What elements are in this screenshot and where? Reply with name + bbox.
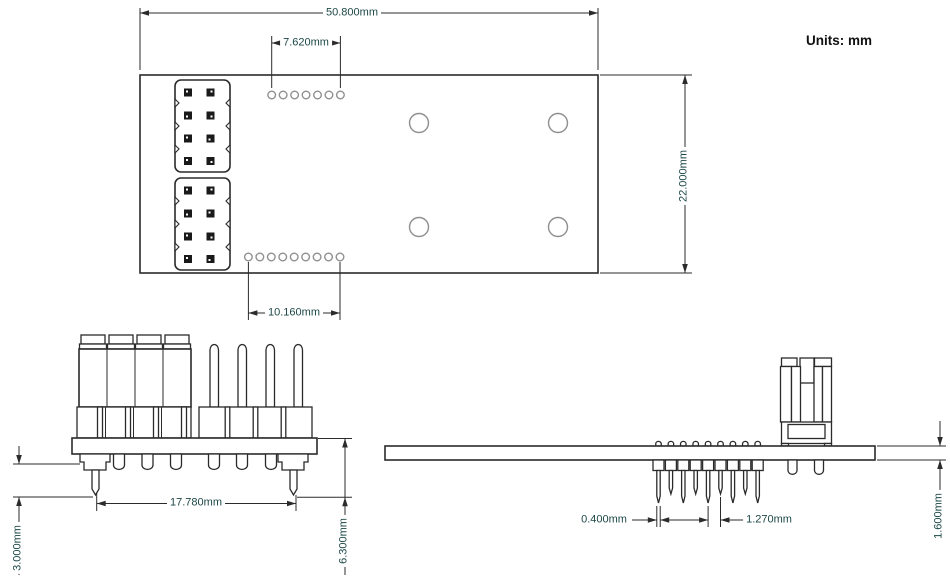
side-pin-collars — [653, 460, 763, 471]
pcb-outline-front-view — [72, 438, 317, 454]
dim-pin-thickness — [632, 506, 686, 527]
bottom-hole-row — [245, 253, 344, 261]
side-view — [385, 358, 946, 527]
dim-pin-tail-length — [13, 446, 93, 575]
dim-label-board-thickness: 1.600mm — [933, 490, 946, 542]
dim-label-board-height: 22.000mm — [678, 147, 691, 205]
dim-label-pin-thickness: 0.400mm — [578, 514, 630, 527]
dimension-drawing-page: Units: mm 50.800mm 7.620mm 22.000mm 10.1… — [0, 0, 950, 579]
top-view — [140, 8, 692, 320]
dim-label-pin-pitch: 1.270mm — [743, 514, 795, 527]
dim-label-board-width: 50.800mm — [323, 7, 381, 20]
side-connector — [781, 358, 832, 446]
units-label: Units: mm — [806, 33, 872, 48]
header-block-a — [175, 80, 230, 172]
front-corner-pin-left — [80, 454, 110, 495]
socket-header-caps — [80, 335, 191, 349]
front-view — [13, 335, 352, 575]
header-block-b — [175, 178, 230, 270]
dim-label-pin-tail-length: 3.000mm — [12, 522, 25, 574]
male-header-pins — [210, 345, 303, 408]
dim-label-bottom-hole-span: 10.160mm — [265, 307, 323, 320]
dim-label-top-hole-span: 7.620mm — [280, 37, 332, 50]
dim-label-overall-below-height: 6.300mm — [338, 515, 351, 567]
male-header-base — [199, 407, 312, 438]
mounting-holes — [410, 114, 568, 237]
front-solder-stubs — [114, 454, 277, 470]
dim-label-pin-row-span: 17.780mm — [167, 497, 225, 510]
technical-drawing — [0, 0, 950, 579]
socket-header-bodies — [79, 349, 191, 407]
socket-base-strip — [77, 407, 191, 438]
side-connector-legs — [788, 460, 824, 474]
side-pins — [657, 471, 760, 504]
pcb-outline-side-view — [385, 446, 875, 460]
front-corner-pin-right — [278, 454, 308, 495]
dim-pin-pitch — [686, 497, 744, 527]
dim-board-thickness — [877, 421, 946, 494]
top-hole-row — [268, 91, 344, 99]
